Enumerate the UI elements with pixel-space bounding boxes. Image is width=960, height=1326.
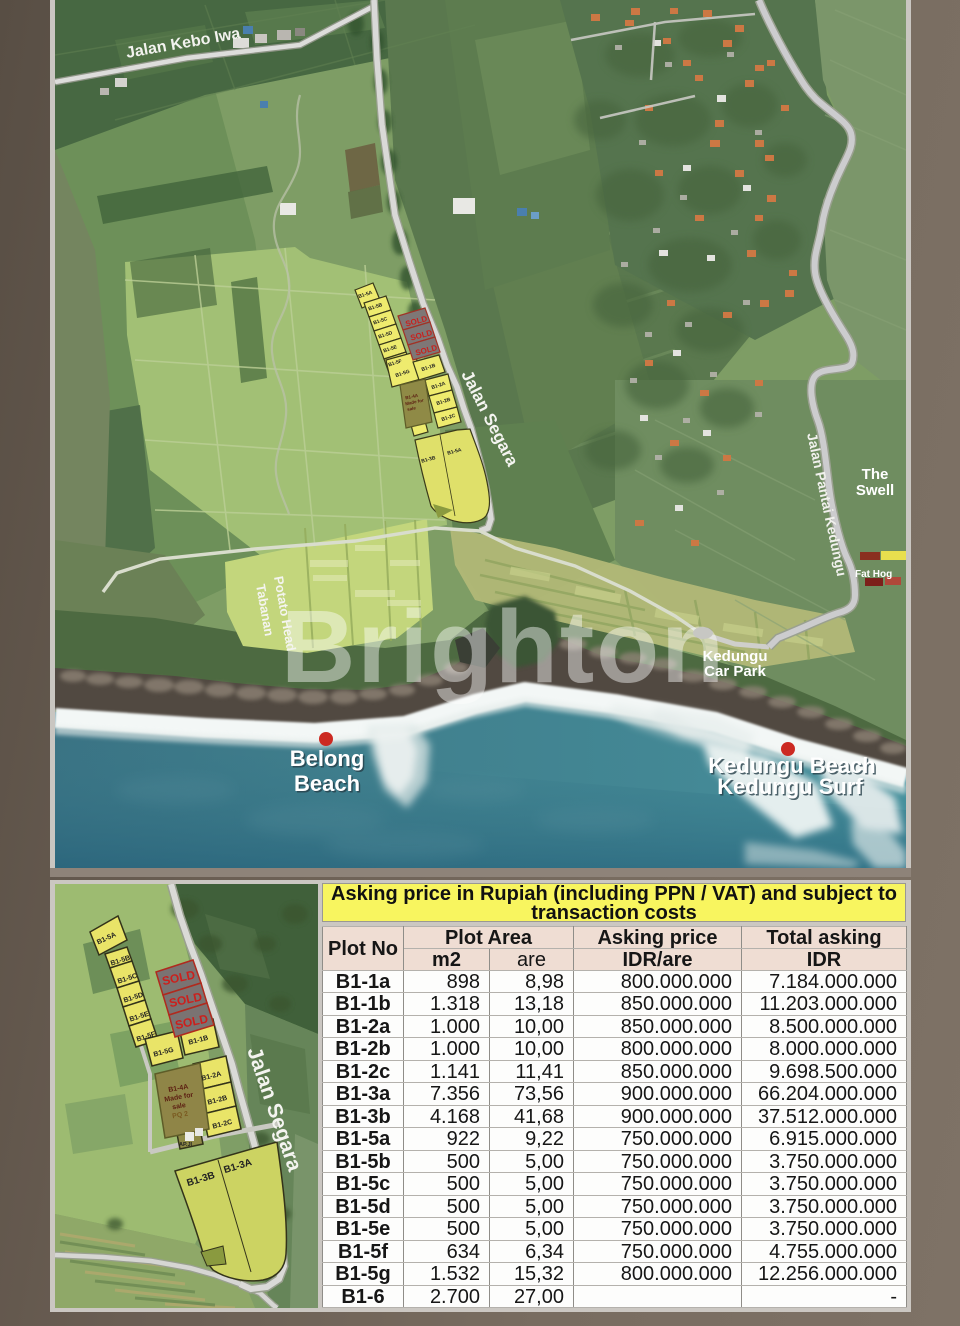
svg-text:The: The [862, 466, 889, 483]
svg-text:AP.JI: AP.JI [179, 1142, 193, 1148]
svg-text:Car Park: Car Park [704, 663, 766, 680]
svg-text:Swell: Swell [856, 482, 894, 499]
svg-text:Beach: Beach [294, 771, 360, 796]
svg-text:Fat Hog: Fat Hog [855, 569, 892, 580]
svg-text:Kedungu Surf: Kedungu Surf [717, 774, 863, 799]
svg-text:Brighton: Brighton [281, 589, 726, 704]
svg-text:Belong: Belong [290, 746, 365, 771]
